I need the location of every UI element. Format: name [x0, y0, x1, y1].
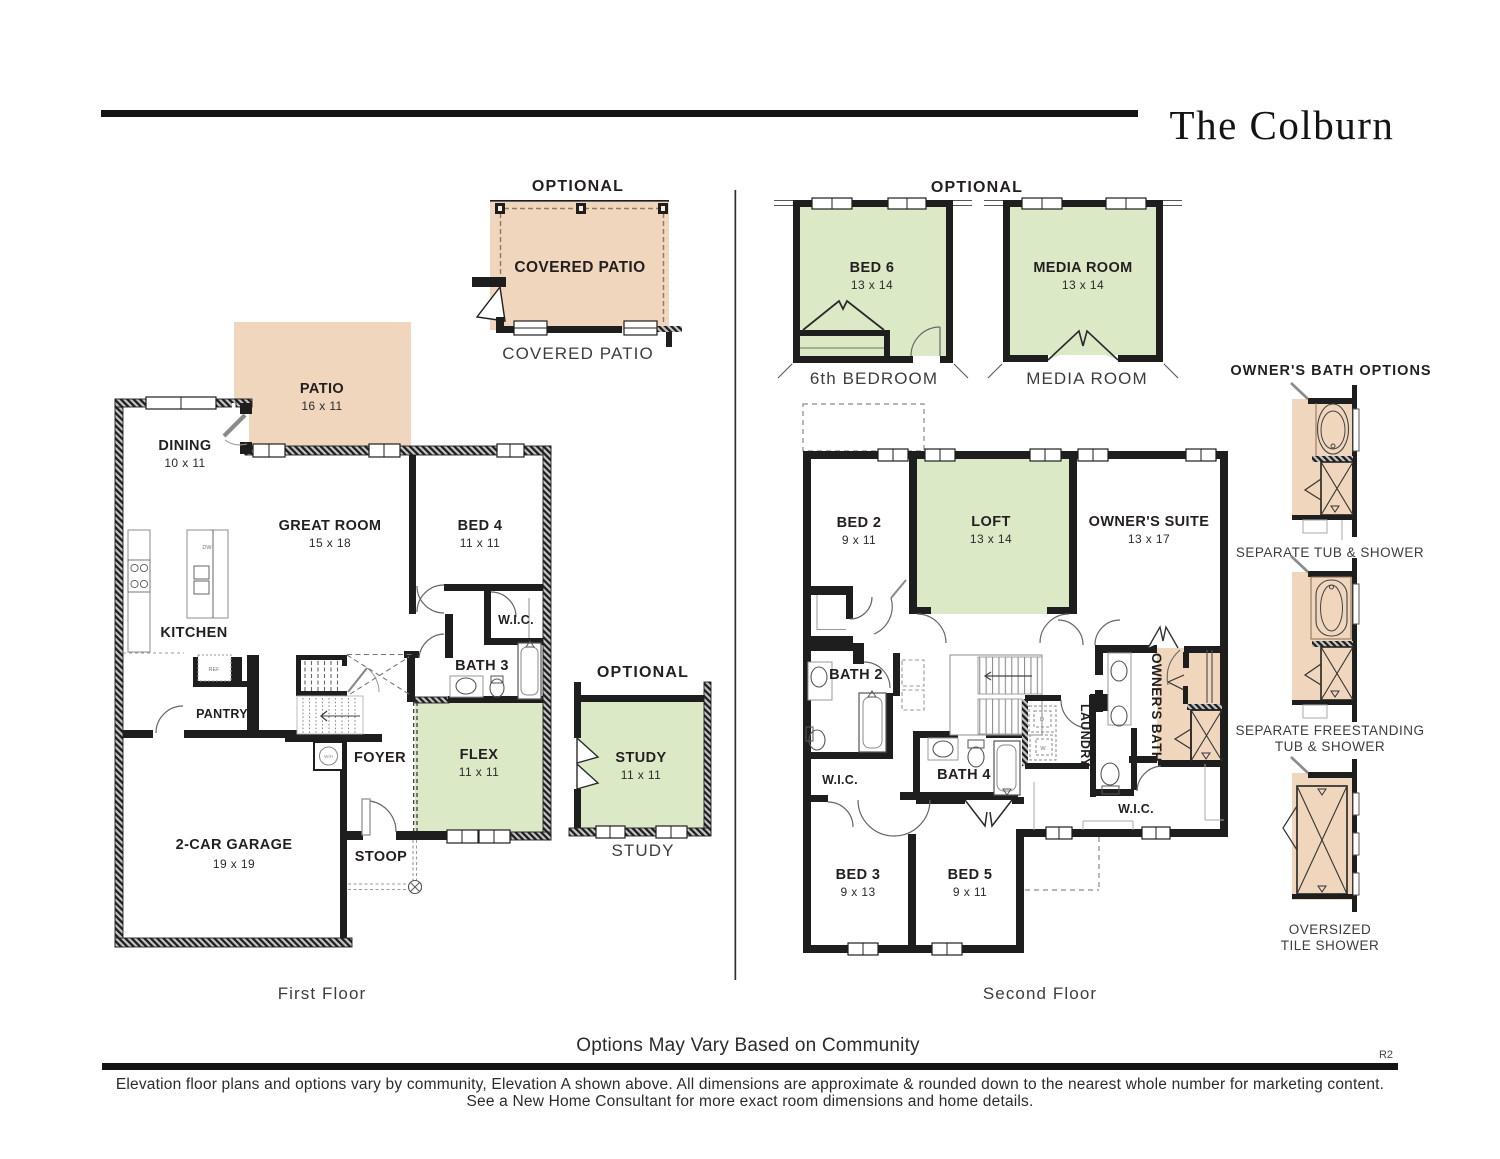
svg-text:W.I.C.: W.I.C. — [1118, 802, 1154, 816]
svg-text:GREAT ROOM: GREAT ROOM — [279, 518, 382, 534]
svg-text:TILE SHOWER: TILE SHOWER — [1281, 938, 1380, 953]
svg-text:STUDY: STUDY — [615, 750, 666, 766]
svg-text:STOOP: STOOP — [355, 849, 408, 865]
svg-text:MEDIA ROOM: MEDIA ROOM — [1033, 260, 1132, 276]
svg-text:DW: DW — [202, 545, 212, 551]
svg-text:11 x 11: 11 x 11 — [459, 765, 499, 779]
svg-text:KITCHEN: KITCHEN — [160, 625, 227, 641]
svg-text:FLEX: FLEX — [460, 747, 499, 763]
svg-text:SEPARATE TUB & SHOWER: SEPARATE TUB & SHOWER — [1236, 545, 1424, 560]
svg-text:13 x 17: 13 x 17 — [1128, 532, 1170, 546]
svg-text:OPTIONAL: OPTIONAL — [532, 178, 624, 195]
svg-text:10 x 11: 10 x 11 — [164, 456, 205, 470]
svg-text:REF: REF — [209, 667, 221, 673]
svg-text:W/H: W/H — [324, 754, 333, 759]
svg-text:LOFT: LOFT — [971, 514, 1010, 530]
svg-text:2-CAR GARAGE: 2-CAR GARAGE — [176, 837, 293, 853]
svg-text:STUDY: STUDY — [611, 841, 674, 860]
svg-text:Elevation floor plans and opti: Elevation floor plans and options vary b… — [116, 1076, 1384, 1093]
svg-text:11 x 11: 11 x 11 — [621, 768, 661, 782]
svg-text:W.I.C.: W.I.C. — [498, 613, 534, 627]
svg-text:D: D — [1040, 717, 1044, 723]
svg-text:9 x 13: 9 x 13 — [840, 885, 875, 899]
svg-text:COVERED PATIO: COVERED PATIO — [502, 344, 654, 363]
svg-text:DINING: DINING — [158, 438, 211, 454]
svg-text:BED 5: BED 5 — [948, 867, 993, 883]
svg-text:COVERED PATIO: COVERED PATIO — [514, 259, 645, 276]
svg-text:BED 2: BED 2 — [837, 515, 882, 531]
svg-text:PANTRY: PANTRY — [196, 707, 248, 721]
svg-text:9 x 11: 9 x 11 — [953, 885, 987, 899]
svg-text:PATIO: PATIO — [300, 381, 344, 397]
svg-text:OWNER'S BATH: OWNER'S BATH — [1149, 653, 1164, 762]
svg-text:TUB & SHOWER: TUB & SHOWER — [1275, 739, 1385, 754]
svg-text:BED 3: BED 3 — [836, 867, 881, 883]
svg-text:First Floor: First Floor — [278, 984, 367, 1003]
svg-text:Options May Vary Based on Comm: Options May Vary Based on Community — [576, 1035, 920, 1056]
svg-text:BATH 3: BATH 3 — [455, 658, 509, 674]
svg-text:BED 4: BED 4 — [458, 518, 503, 534]
svg-text:16 x 11: 16 x 11 — [301, 399, 342, 413]
svg-text:OWNER'S BATH OPTIONS: OWNER'S BATH OPTIONS — [1230, 363, 1431, 379]
svg-text:13 x 14: 13 x 14 — [1062, 278, 1104, 292]
svg-text:W: W — [1040, 746, 1046, 752]
svg-text:19 x 19: 19 x 19 — [213, 857, 255, 871]
svg-text:FOYER: FOYER — [354, 750, 406, 766]
svg-text:OPTIONAL: OPTIONAL — [931, 179, 1023, 196]
svg-text:11 x 11: 11 x 11 — [460, 536, 500, 550]
svg-text:Second Floor: Second Floor — [983, 984, 1097, 1003]
svg-text:13 x 14: 13 x 14 — [970, 532, 1012, 546]
svg-text:See a New Home Consultant for: See a New Home Consultant for more exact… — [466, 1093, 1033, 1110]
svg-text:The Colburn: The Colburn — [1170, 102, 1395, 148]
svg-text:OWNER'S SUITE: OWNER'S SUITE — [1089, 514, 1210, 530]
svg-text:OPTIONAL: OPTIONAL — [597, 664, 689, 681]
svg-text:OVERSIZED: OVERSIZED — [1289, 922, 1372, 937]
svg-text:BED 6: BED 6 — [850, 260, 895, 276]
svg-text:13 x 14: 13 x 14 — [851, 278, 893, 292]
svg-text:BATH 4: BATH 4 — [937, 767, 991, 783]
svg-text:LAUNDRY: LAUNDRY — [1078, 704, 1092, 767]
svg-text:MEDIA ROOM: MEDIA ROOM — [1026, 369, 1148, 388]
svg-text:W.I.C.: W.I.C. — [822, 773, 858, 787]
svg-text:6th BEDROOM: 6th BEDROOM — [810, 369, 938, 388]
svg-text:9 x 11: 9 x 11 — [842, 533, 876, 547]
svg-text:SEPARATE FREESTANDING: SEPARATE FREESTANDING — [1235, 723, 1424, 738]
svg-text:BATH 2: BATH 2 — [829, 667, 883, 683]
svg-text:R2: R2 — [1379, 1049, 1393, 1061]
svg-text:15 x 18: 15 x 18 — [309, 536, 351, 550]
